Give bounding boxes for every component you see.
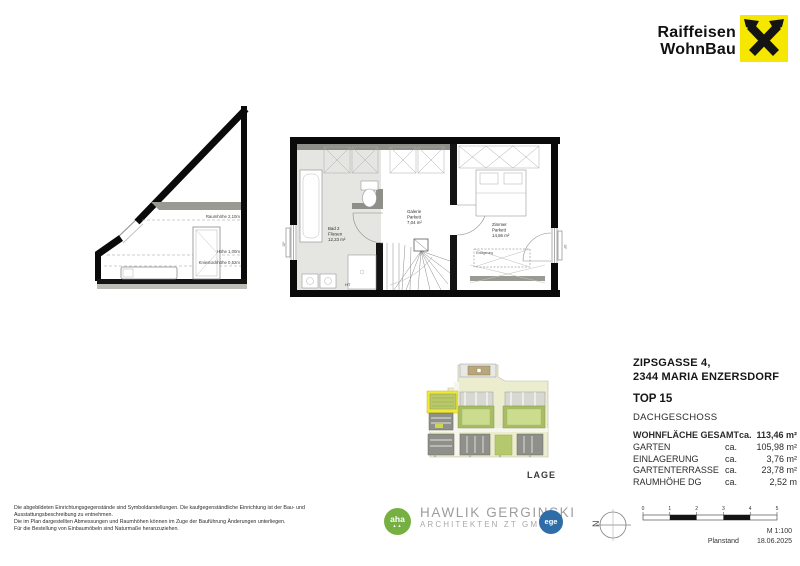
room-galerie-area: 7,04 m² <box>407 220 422 225</box>
plan-status-date: 18.06.2025 <box>757 538 792 545</box>
north-label: N <box>591 521 601 528</box>
aha-logo-badge: aha ▲▲ <box>384 508 411 535</box>
door-terrace <box>523 233 551 261</box>
room-zimmer-name: Zimmer <box>492 222 507 227</box>
scale-bar: 0 1 2 3 4 5 <box>640 502 795 526</box>
window-left-label: DF <box>282 242 286 247</box>
section-label-room-height: Raumhöhe 2,10m <box>206 214 241 219</box>
disclaimer-line1: Die abgebildeten Einrichtungsgegenstände… <box>14 505 305 512</box>
bathtub <box>300 170 322 242</box>
room-bad-finish: Fliesen <box>328 232 343 237</box>
plan-status-label: Planstand <box>708 538 739 545</box>
section-furniture <box>121 227 220 279</box>
site-buildings-bottom <box>428 434 543 455</box>
room-galerie-name: Galerie <box>407 209 422 214</box>
scale-tick-4: 4 <box>749 506 752 512</box>
siteplan-caption: LAGE <box>506 470 556 480</box>
address-line1: ZIPSGASSE 4, <box>633 356 779 370</box>
window-right <box>552 228 562 263</box>
north-arrow-icon: N <box>583 503 633 547</box>
shaft-label: HT <box>345 282 351 287</box>
plan-status: Planstand 18.06.2025 <box>642 538 792 545</box>
window-left <box>286 225 296 260</box>
site-building-mid-left <box>458 392 494 428</box>
room-bad-name: Bad 2 <box>328 226 340 231</box>
site-building-top <box>460 364 496 377</box>
brand-line1: Raiffeisen <box>658 24 736 41</box>
room-galerie-finish: Parkett <box>407 215 422 220</box>
scale-tick-5: 5 <box>776 506 779 512</box>
wardrobe <box>459 146 539 168</box>
staircase <box>387 239 450 290</box>
storage-area: Einlagerung <box>474 249 530 267</box>
area-row-height: RAUMHÖHE DG ca. 2,52 m <box>633 477 797 489</box>
brand-line2: WohnBau <box>658 41 736 58</box>
section-label-knee-wall: Kniestockhöhe 0,52m <box>199 260 241 265</box>
scale-tick-0: 0 <box>642 506 645 512</box>
disclaimer-line2: Ausstattungsbeschreibung zu entnehmen. <box>14 512 305 519</box>
room-zimmer-finish: Parkett <box>492 228 507 233</box>
address-line2: 2344 MARIA ENZERSDORF <box>633 370 779 384</box>
aha-logo-triangles-icon: ▲▲ <box>393 524 403 528</box>
project-address: ZIPSGASSE 4, 2344 MARIA ENZERSDORF <box>633 356 779 384</box>
section-label-height: Höhe 1,00m <box>217 249 241 254</box>
scale-tick-1: 1 <box>668 506 671 512</box>
room-zimmer-area: 14,56 m² <box>492 233 510 238</box>
unit-number: TOP 15 <box>633 393 672 405</box>
storage-label: Einlagerung <box>476 251 493 255</box>
raiffeisen-gable-cross-icon <box>740 15 788 62</box>
disclaimer: Die abgebildeten Einrichtungsgegenstände… <box>14 505 305 533</box>
floor-level: DACHGESCHOSS <box>633 412 717 423</box>
ege-logo-badge: ege <box>539 510 563 534</box>
site-plan <box>410 360 555 472</box>
window-right-label: DF <box>563 245 567 250</box>
scale-ratio: M 1:100 <box>692 528 792 535</box>
floorplan-drawing: DF DF <box>282 137 568 297</box>
area-row-terrace: GARTENTERRASSE ca. 23,78 m² <box>633 465 797 477</box>
bed <box>476 170 526 216</box>
brand-wordmark: Raiffeisen WohnBau <box>658 24 736 58</box>
section-drawing: Raumhöhe 2,10m Höhe 1,00m Kniestockhöhe … <box>95 103 267 303</box>
area-table: WOHNFLÄCHE GESAMT ca. 113,46 m² GARTEN c… <box>633 430 797 489</box>
plan-sheet: Raiffeisen WohnBau <box>0 0 800 566</box>
disclaimer-line4: Für die Bestellung von Einbaumöbeln sind… <box>14 526 305 533</box>
scale-tick-3: 3 <box>722 506 725 512</box>
disclaimer-line3: Die im Plan dargestellten Abmessungen un… <box>14 519 305 526</box>
area-row-storage: EINLAGERUNG ca. 3,76 m² <box>633 454 797 466</box>
ege-logo-text: ege <box>545 518 558 526</box>
galerie-cabinets <box>390 147 444 173</box>
area-row-total: WOHNFLÄCHE GESAMT ca. 113,46 m² <box>633 430 797 442</box>
area-row-garden: GARTEN ca. 105,98 m² <box>633 442 797 454</box>
scale-tick-2: 2 <box>695 506 698 512</box>
room-bad-area: 12,23 m² <box>328 237 346 242</box>
shower <box>348 255 376 289</box>
toilet <box>361 181 378 207</box>
site-building-mid-right <box>503 392 545 428</box>
